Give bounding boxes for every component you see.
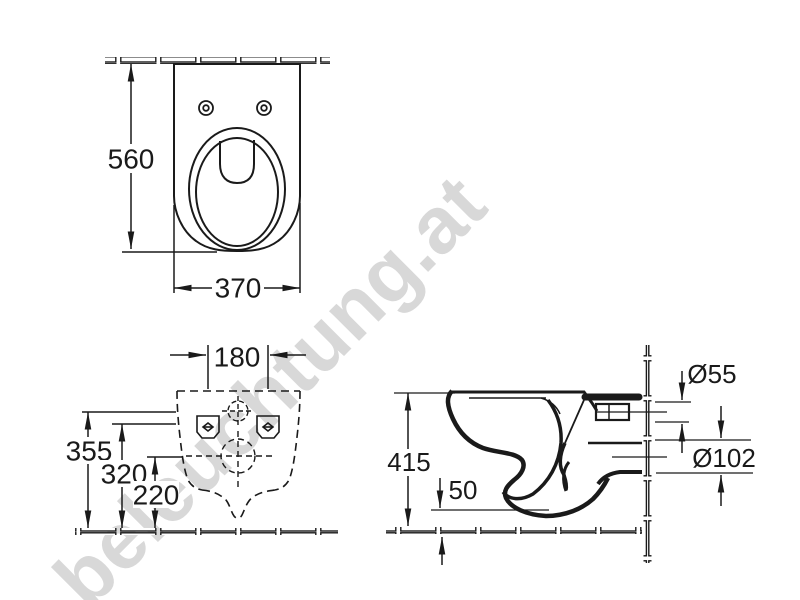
dim-label-415: 415 xyxy=(387,447,430,477)
side-view-wall-hatch xyxy=(644,345,652,563)
mounting-hole-right xyxy=(257,101,271,115)
seat-outer-rim xyxy=(189,128,285,250)
mounting-hole-left xyxy=(199,101,213,115)
drawing-canvas: beleuchtung.at 560 xyxy=(0,0,800,600)
toilet-section-profile xyxy=(448,391,667,516)
dim-label-560: 560 xyxy=(108,144,155,175)
toilet-body-outline xyxy=(174,64,300,251)
dim-label-220: 220 xyxy=(133,480,180,511)
rear-view-floor-hatch xyxy=(75,528,338,535)
top-view: 560 370 xyxy=(105,57,330,304)
technical-drawing-page: beleuchtung.at 560 xyxy=(0,0,800,600)
dim-label-50: 50 xyxy=(449,475,478,505)
top-view-wall-hatch xyxy=(105,57,330,64)
dim-label-outlet-diameter: Ø102 xyxy=(692,443,756,473)
dim-label-370: 370 xyxy=(215,273,262,304)
bowl-inner-rim xyxy=(196,138,278,246)
side-view-floor-hatch xyxy=(386,527,642,534)
side-view: 415 50 Ø55 Ø102 xyxy=(383,345,756,565)
dim-label-180: 180 xyxy=(214,342,261,373)
dim-label-inlet-diameter: Ø55 xyxy=(687,359,736,389)
flush-channel xyxy=(220,140,254,183)
